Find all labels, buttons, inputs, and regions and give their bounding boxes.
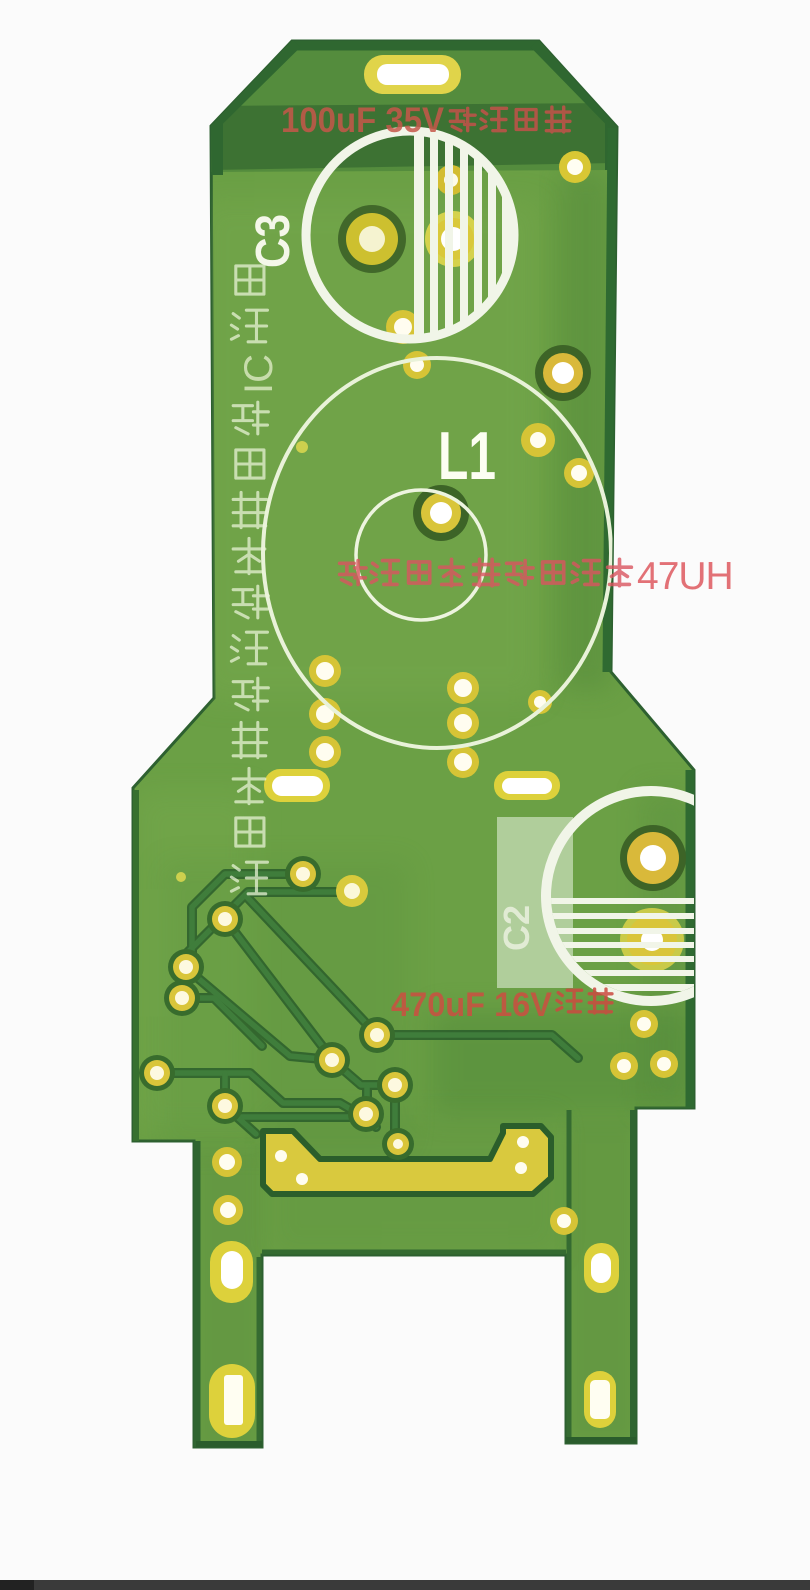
- svg-text:L1: L1: [438, 418, 496, 494]
- svg-text:IC: IC: [237, 354, 281, 394]
- svg-text:47UH: 47UH: [637, 555, 733, 598]
- svg-text:C2: C2: [496, 905, 537, 951]
- svg-text:470uF 16V: 470uF 16V: [391, 986, 552, 1024]
- svg-text:100uF 35V: 100uF 35V: [281, 101, 445, 140]
- svg-text:C3: C3: [247, 214, 300, 268]
